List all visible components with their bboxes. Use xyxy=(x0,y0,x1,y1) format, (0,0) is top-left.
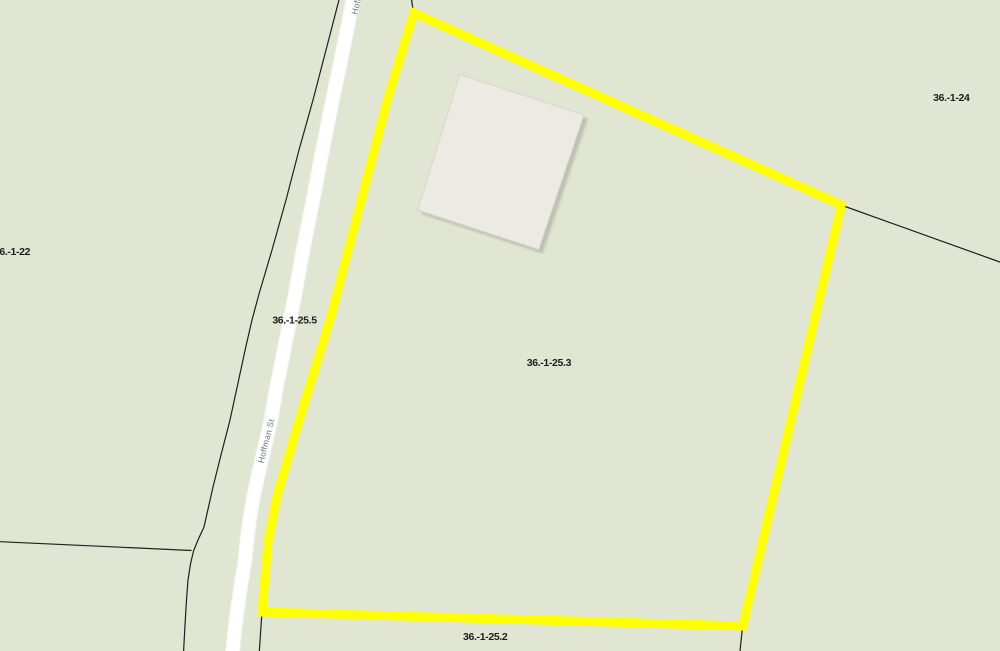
svg-text:36.-1-24: 36.-1-24 xyxy=(933,92,970,104)
svg-text:36.-1-25.5: 36.-1-25.5 xyxy=(272,315,317,327)
svg-text:36.-1-22: 36.-1-22 xyxy=(0,246,31,258)
svg-text:36.-1-25.2: 36.-1-25.2 xyxy=(463,631,508,643)
svg-text:36.-1-25.3: 36.-1-25.3 xyxy=(527,357,572,369)
